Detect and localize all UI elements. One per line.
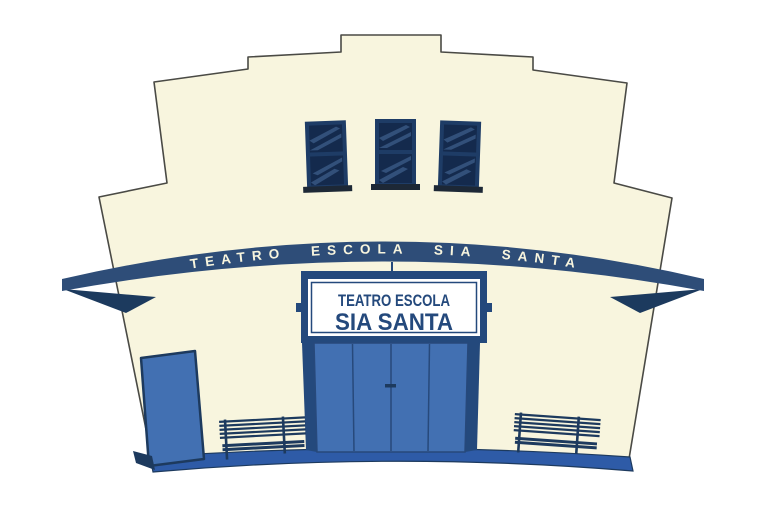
window-left: [301, 122, 352, 193]
sign-line1: TEATRO ESCOLA: [338, 291, 450, 310]
window-right: [434, 122, 485, 193]
sign-side-tab-right: [487, 303, 492, 312]
side-door-left: [141, 351, 204, 466]
marquee-sign: TEATRO ESCOLA SIA SANTA: [296, 262, 492, 343]
main-entrance: [302, 343, 480, 452]
sign-line2: SIA SANTA: [335, 309, 453, 336]
theater-building-illustration: TEATRO ESCOLA SIA SANTA TEATRO ESCOLA SI…: [0, 0, 767, 511]
sign-side-tab-left: [296, 303, 301, 312]
window-center: [371, 121, 420, 190]
door-handle: [385, 384, 396, 388]
illustration-canvas: TEATRO ESCOLA SIA SANTA TEATRO ESCOLA SI…: [0, 0, 767, 511]
